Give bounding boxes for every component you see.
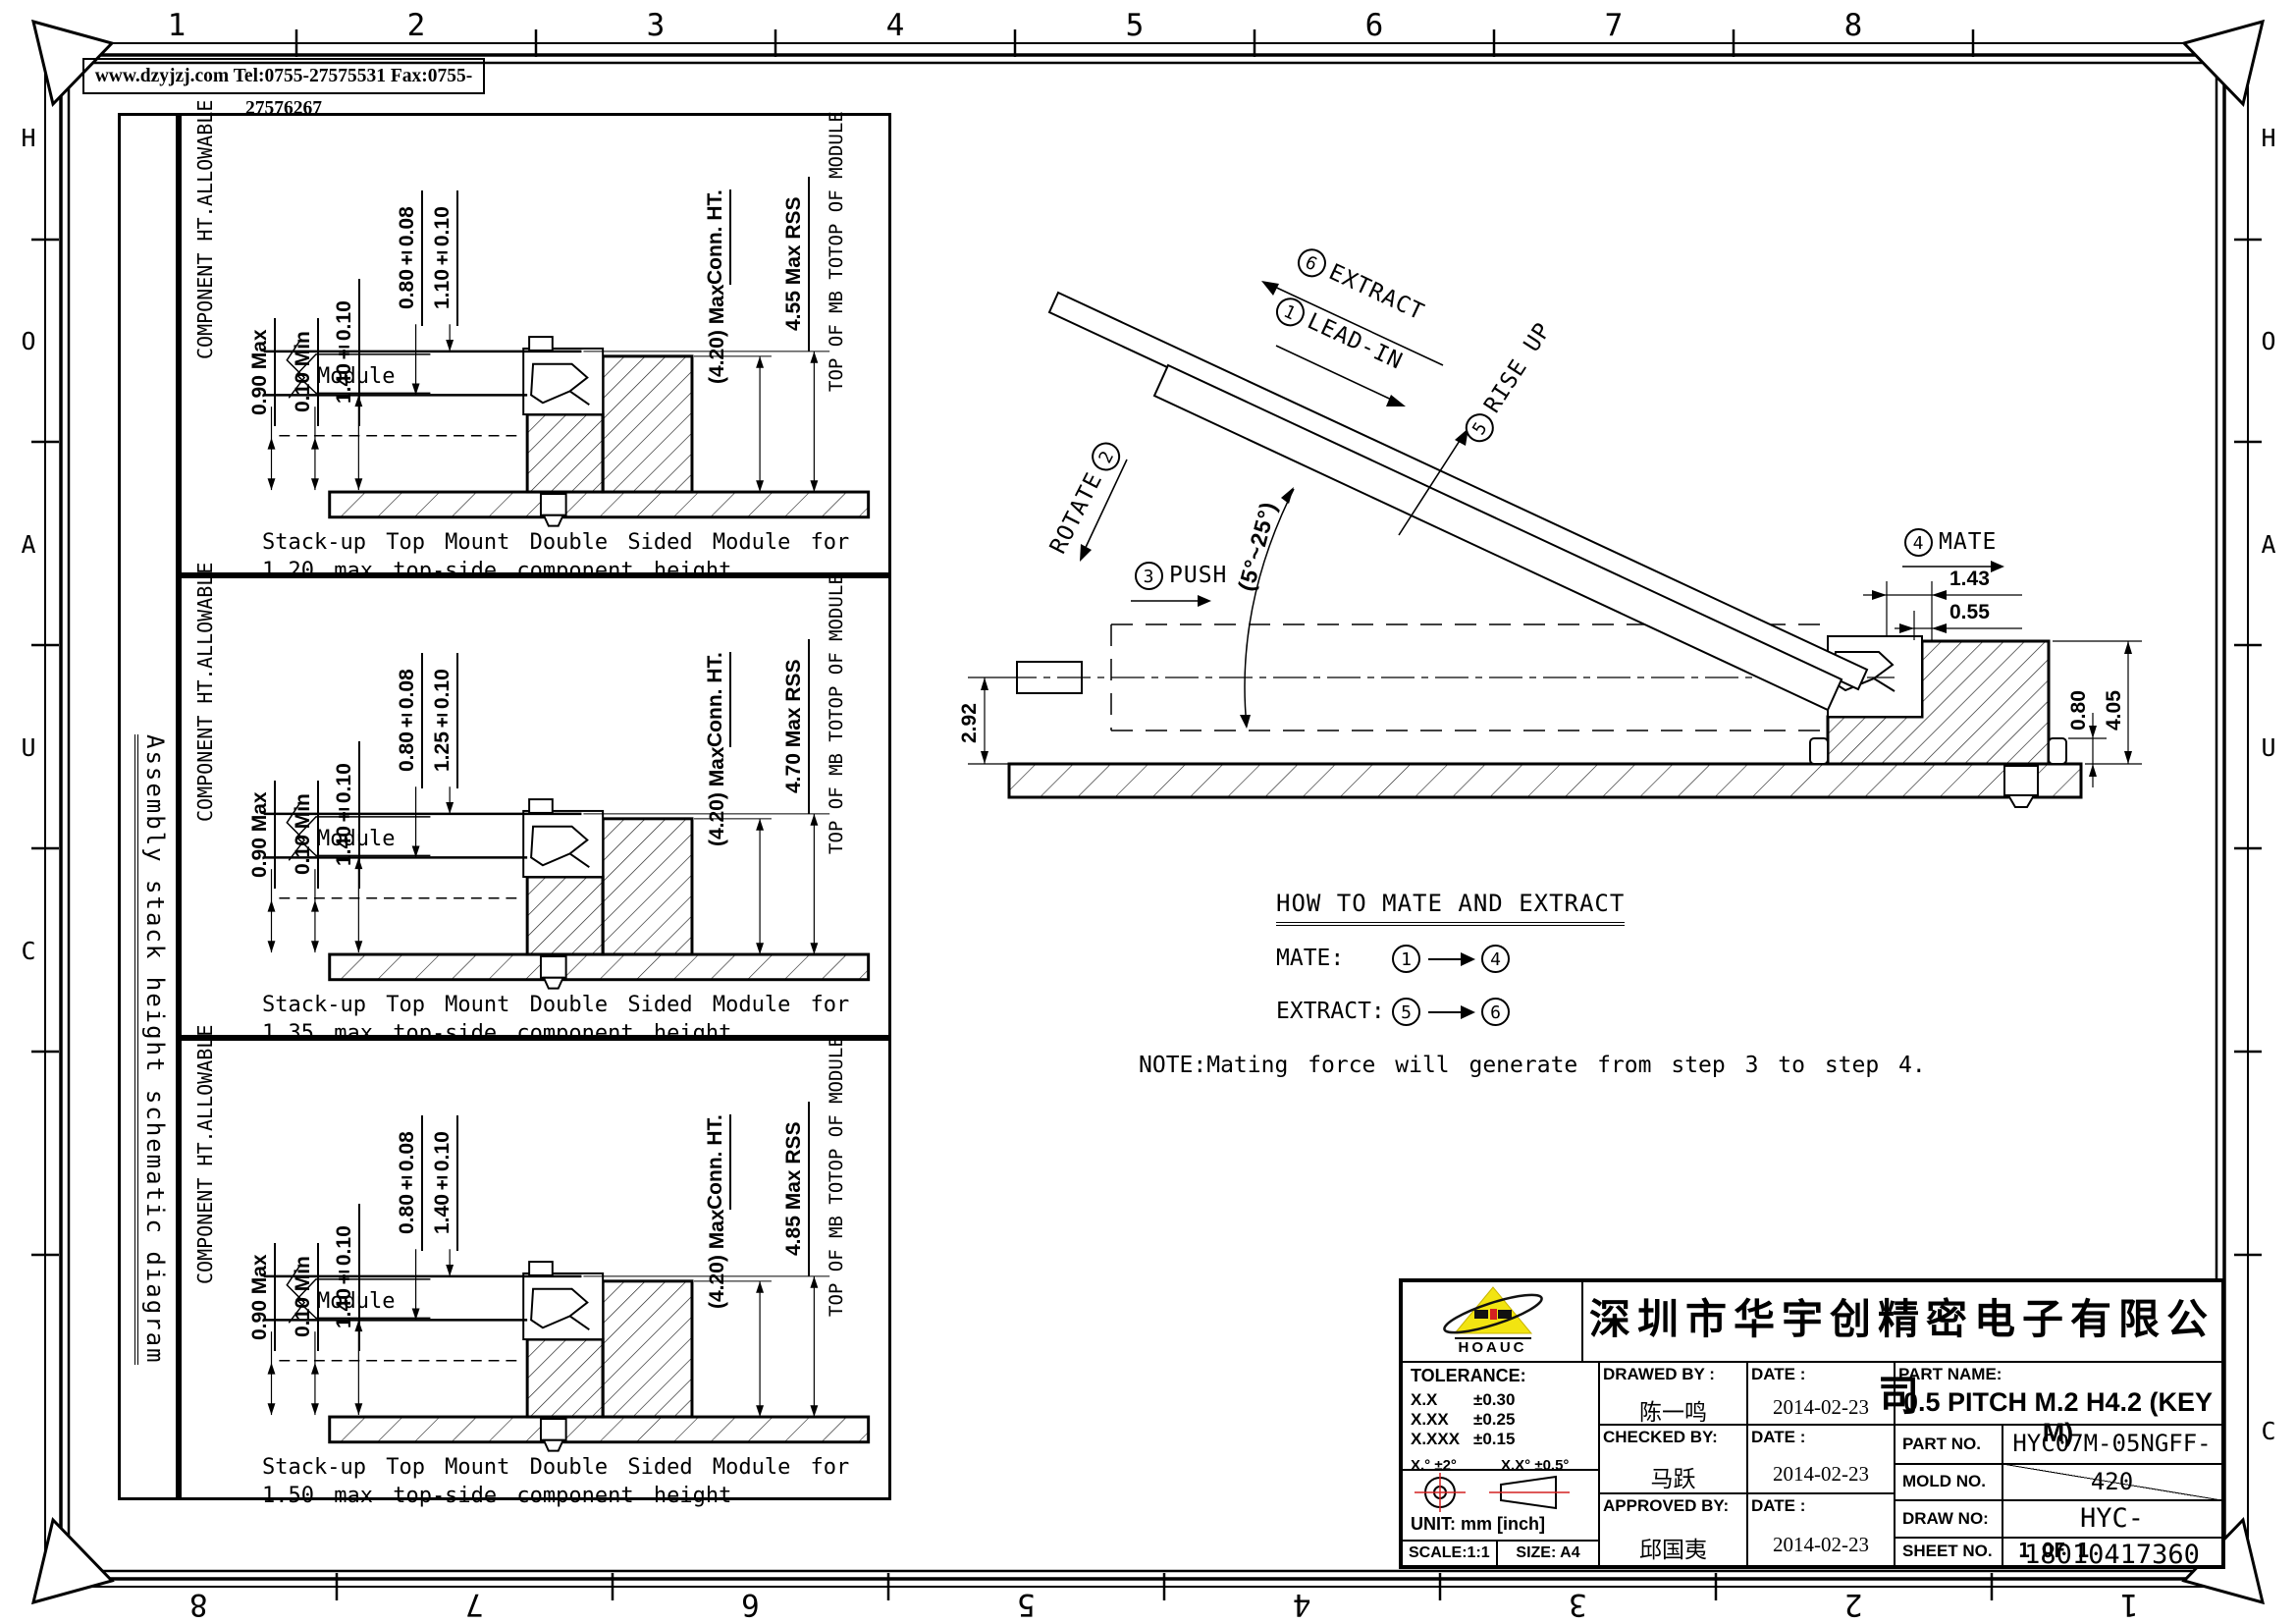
drawed-date: 2014-02-23 — [1747, 1395, 1895, 1420]
zone-number: 3 — [1556, 1587, 1599, 1622]
component-ht-label: COMPONENT HT.ALLOWABLE — [193, 594, 217, 790]
part-no-label: PART NO. — [1894, 1424, 2003, 1465]
how-to-title: HOW TO MATE AND EXTRACT — [1276, 890, 1625, 926]
connector-body — [603, 819, 692, 954]
zone-number: 8 — [177, 1587, 220, 1622]
stack-diagram-2: COMPONENT HT.ALLOWABLE 0.90 Max 0.10 Min… — [179, 575, 891, 1038]
scene-foot-right — [2049, 738, 2066, 764]
top-of-mb-label: TOP OF MB TOTOP OF MODULE — [826, 610, 847, 818]
scene-pcb — [1009, 764, 2081, 797]
how-to-mate-row: MATE:14 — [1276, 945, 1510, 973]
zone-number: 4 — [1280, 1587, 1323, 1622]
solder-pin-hole — [541, 956, 566, 978]
zone-letter: U — [14, 733, 43, 762]
part-no-value: HYC07M-05NGFF-420 — [2002, 1424, 2222, 1465]
module-label: Module — [317, 364, 395, 389]
tolerance-cell: TOLERANCE: X.X±0.30 X.XX±0.25 X.XXX±0.15… — [1402, 1361, 1600, 1470]
approved-date: 2014-02-23 — [1747, 1533, 1895, 1557]
assembly-strip: Assembly stack height schematic diagram — [118, 113, 179, 1500]
zone-letter: A — [14, 530, 43, 559]
logo-text: HOAUC — [1455, 1337, 1531, 1356]
projection-symbol-cell: UNIT: mm [inch] — [1402, 1470, 1600, 1541]
dim-mid: 1.40±0.10 — [431, 1115, 458, 1251]
conn-ht-label: (4.20) MaxConn. HT. — [704, 224, 731, 350]
drawed-date-cell: DATE : 2014-02-23 — [1746, 1361, 1896, 1426]
zone-letter: C — [2254, 1417, 2283, 1445]
dim-080: 0.80±0.08 — [396, 653, 423, 788]
stack-diagram-1: COMPONENT HT.ALLOWABLE 0.90 Max 0.10 Min… — [179, 113, 891, 575]
dim-080: 0.80±0.08 — [396, 190, 423, 326]
arrow-right-icon — [1428, 1011, 1473, 1013]
mold-no-value-empty — [2002, 1463, 2222, 1501]
approved-date-cell: DATE : 2014-02-23 — [1746, 1492, 1896, 1566]
scene-pin-tip — [2008, 795, 2034, 807]
tilted-board-thin — [1049, 293, 1867, 689]
how-to-extract-row: EXTRACT:56 — [1276, 998, 1510, 1026]
step-push-label: 3PUSH — [1129, 562, 1227, 590]
zone-number: 5 — [1004, 1587, 1047, 1622]
module-label: Module — [317, 827, 395, 851]
dim-mid: 1.25±0.10 — [431, 653, 458, 788]
connector-base — [527, 414, 603, 492]
title-block: HOAUC 深圳市华宇创精密电子有限公司 TOLERANCE: X.X±0.30… — [1399, 1278, 2225, 1569]
company-name: 深圳市华宇创精密电子有限公司 — [1581, 1281, 2222, 1363]
drawed-by-name: 陈一鸣 — [1599, 1393, 1747, 1427]
zone-letter: H — [2254, 124, 2283, 152]
rss-label: 4.85 Max RSS — [782, 1102, 810, 1276]
rss-label: 4.55 Max RSS — [782, 177, 810, 352]
connector-body — [603, 1281, 692, 1417]
connector-base — [527, 1339, 603, 1417]
top-of-mb-label: TOP OF MB TOTOP OF MODULE — [826, 1072, 847, 1280]
step-mate-label: 4MATE — [1898, 528, 1997, 557]
solder-pin-hole — [541, 494, 566, 515]
dim-mid: 1.10±0.10 — [431, 190, 458, 326]
zone-letter: U — [2254, 733, 2283, 762]
dim-140: 1.40±0.10 — [333, 741, 360, 889]
step-number-circle: 1 — [1392, 945, 1420, 973]
zone-number: 6 — [1353, 8, 1396, 43]
rss-label: 4.70 Max RSS — [782, 639, 810, 814]
dim-140: 1.40±0.10 — [333, 1204, 360, 1351]
scale-cell: SCALE:1:1 — [1402, 1541, 1498, 1566]
stack-diagram-3: COMPONENT HT.ALLOWABLE 0.90 Max 0.10 Min… — [179, 1038, 891, 1500]
zone-number: 3 — [634, 8, 677, 43]
top-of-mb-label: TOP OF MB TOTOP OF MODULE — [826, 147, 847, 355]
dim-143: 1.43 — [1949, 568, 1990, 591]
solder-pin-tip — [544, 978, 563, 989]
zone-number: 7 — [1592, 8, 1635, 43]
zone-number: 2 — [1832, 1587, 1875, 1622]
motherboard-pcb — [330, 492, 869, 517]
zone-letter: A — [2254, 530, 2283, 559]
zone-number: 4 — [874, 8, 917, 43]
connector-latch — [529, 1262, 553, 1275]
third-angle-projection-icon — [1403, 1471, 1597, 1514]
dim-140: 1.40±0.10 — [333, 279, 360, 426]
solder-pin-hole — [541, 1419, 566, 1440]
dim-090-max: 0.90 Max — [248, 318, 276, 426]
component-ht-label: COMPONENT HT.ALLOWABLE — [193, 1056, 217, 1253]
dim-010-min: 0.10 Min — [292, 318, 319, 426]
unit-label: UNIT: mm [inch] — [1403, 1514, 1599, 1535]
part-name-cell: PART NAME: 0.5 PITCH M.2 H4.2 (KEY M) — [1894, 1361, 2222, 1426]
solder-pin-tip — [544, 1440, 563, 1451]
zone-number: 1 — [2108, 1587, 2151, 1622]
zone-letter: O — [2254, 327, 2283, 355]
step-number-circle: 4 — [1904, 528, 1933, 557]
connector-latch — [529, 337, 553, 351]
motherboard-pcb — [330, 954, 869, 980]
zone-number: 8 — [1832, 8, 1875, 43]
draw-no-value: HYC-18010417360 — [2002, 1499, 2222, 1539]
conn-ht-label: (4.20) MaxConn. HT. — [704, 686, 731, 812]
hoauc-logo-icon — [1435, 1284, 1551, 1337]
dim-010-min: 0.10 Min — [292, 1243, 319, 1351]
connector-base — [527, 877, 603, 954]
dim-010-min: 0.10 Min — [292, 781, 319, 889]
arrow-right-icon — [1428, 958, 1473, 960]
dim-292: 2.92 — [958, 685, 982, 762]
solder-pin-tip — [544, 515, 563, 526]
mating-note: NOTE:Mating force will generate from ste… — [1139, 1053, 1926, 1078]
step-number-circle: 5 — [1392, 998, 1420, 1026]
engineering-drawing-sheet: 1 2 3 4 5 6 7 8 8 7 6 5 4 3 2 1 H O A U … — [0, 0, 2296, 1624]
scene-foot-left — [1810, 738, 1828, 764]
checked-date: 2014-02-23 — [1747, 1462, 1895, 1487]
connector-body — [603, 356, 692, 492]
dim-080: 0.80±0.08 — [396, 1115, 423, 1251]
dim-080-scene: 0.80 — [2067, 674, 2091, 748]
approved-by-cell: APPROVED BY: 邱国夷 — [1598, 1492, 1748, 1566]
zone-letter: O — [14, 327, 43, 355]
dim-405: 4.05 — [2103, 674, 2126, 748]
module-label: Module — [317, 1289, 395, 1314]
motherboard-pcb — [330, 1417, 869, 1442]
size-cell: SIZE: A4 — [1496, 1541, 1600, 1566]
sheet-no-label: SHEET NO. — [1894, 1537, 2003, 1566]
website-contact-bar: www.dzyjzj.com Tel:0755-27575531 Fax:075… — [82, 58, 485, 94]
stack-caption: Stack-up Top Mount Double Sided Module f… — [262, 1453, 849, 1510]
assembly-strip-title: Assembly stack height schematic diagram — [134, 734, 169, 1365]
conn-ht-label: (4.20) MaxConn. HT. — [704, 1149, 731, 1274]
dim-055: 0.55 — [1949, 601, 1990, 624]
mold-no-label: MOLD NO. — [1894, 1463, 2003, 1501]
logo-cell: HOAUC — [1402, 1281, 1583, 1363]
dim-090-max: 0.90 Max — [248, 1243, 276, 1351]
zone-letter: C — [14, 937, 43, 965]
zone-number: 6 — [728, 1587, 772, 1622]
dim-090-max: 0.90 Max — [248, 781, 276, 889]
zone-number: 2 — [395, 8, 438, 43]
step-number-circle: 3 — [1135, 562, 1163, 590]
checked-date-cell: DATE : 2014-02-23 — [1746, 1424, 1896, 1494]
approved-by-name: 邱国夷 — [1599, 1531, 1747, 1564]
component-ht-label: COMPONENT HT.ALLOWABLE — [193, 132, 217, 328]
step-number-circle: 4 — [1481, 945, 1510, 973]
draw-no-label: DRAW NO: — [1894, 1499, 2003, 1539]
step-number-circle: 6 — [1481, 998, 1510, 1026]
drawed-by-cell: DRAWED BY : 陈一鸣 — [1598, 1361, 1748, 1426]
connector-latch — [529, 799, 553, 813]
zone-number: 7 — [453, 1587, 496, 1622]
checked-by-name: 马跃 — [1599, 1460, 1747, 1493]
zone-number: 1 — [155, 8, 198, 43]
tolerance-title: TOLERANCE: — [1411, 1366, 1591, 1386]
zone-letter: H — [14, 124, 43, 152]
scene-pin-hole — [2004, 766, 2038, 795]
checked-by-cell: CHECKED BY: 马跃 — [1598, 1424, 1748, 1494]
sheet-no-value: 1 OF 1 — [2002, 1537, 2222, 1566]
zone-number: 5 — [1113, 8, 1156, 43]
